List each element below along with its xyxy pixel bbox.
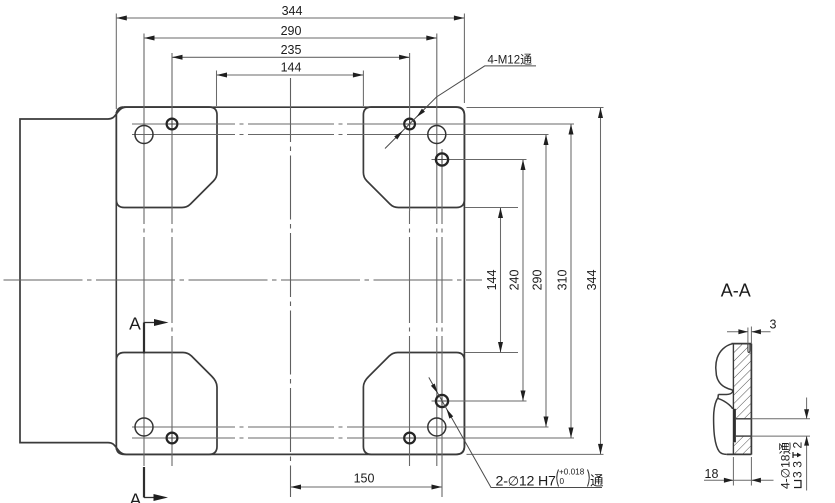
svg-text:2-∅12 H7: 2-∅12 H7 — [496, 474, 557, 490]
svg-text:0: 0 — [560, 477, 565, 486]
svg-text:144: 144 — [485, 270, 499, 291]
svg-text:3: 3 — [770, 318, 777, 332]
svg-text:18: 18 — [705, 467, 719, 481]
svg-text:344: 344 — [282, 4, 303, 18]
svg-text:2: 2 — [791, 442, 805, 449]
svg-text:235: 235 — [281, 43, 302, 57]
svg-text:150: 150 — [354, 472, 375, 486]
svg-text:344: 344 — [585, 270, 599, 291]
svg-text:290: 290 — [531, 270, 545, 291]
svg-text:A: A — [130, 490, 142, 503]
svg-text:4-M12通: 4-M12通 — [488, 53, 533, 67]
svg-text:33: 33 — [791, 457, 805, 478]
svg-text:240: 240 — [508, 270, 522, 291]
svg-text:310: 310 — [556, 270, 570, 291]
svg-text:通: 通 — [590, 474, 604, 489]
svg-text:A-A: A-A — [721, 281, 751, 301]
svg-text:A: A — [129, 314, 141, 334]
svg-text:+0.018: +0.018 — [559, 468, 585, 477]
svg-text:144: 144 — [281, 61, 302, 75]
svg-text:290: 290 — [281, 24, 302, 38]
